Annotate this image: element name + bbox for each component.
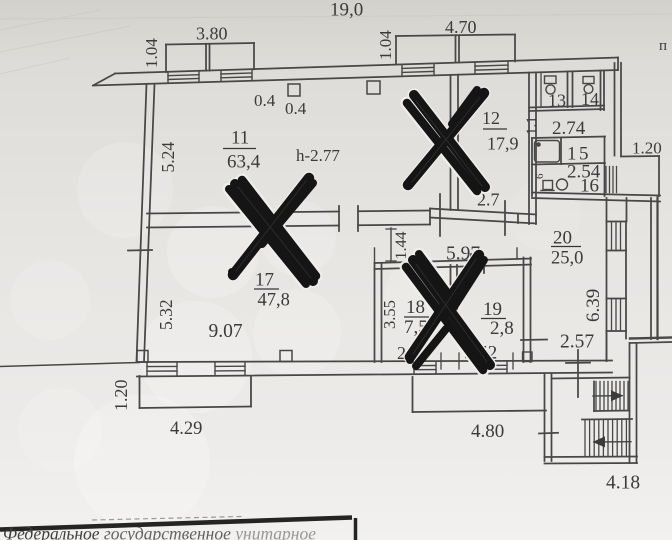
svg-text:17: 17 xyxy=(255,270,274,291)
svg-text:3.80: 3.80 xyxy=(196,24,228,44)
svg-text:19: 19 xyxy=(483,299,502,320)
svg-text:2.57: 2.57 xyxy=(560,332,594,353)
svg-text:1.1: 1.1 xyxy=(524,116,540,135)
svg-text:5.32: 5.32 xyxy=(156,299,176,330)
svg-text:2,8: 2,8 xyxy=(490,318,514,339)
svg-text:1.20: 1.20 xyxy=(111,380,131,412)
svg-text:п: п xyxy=(659,38,667,54)
svg-text:1.04: 1.04 xyxy=(142,38,161,68)
svg-text:13: 13 xyxy=(548,91,566,111)
svg-text:3.55: 3.55 xyxy=(380,300,399,329)
svg-text:2.74: 2.74 xyxy=(552,118,586,139)
svg-text:18: 18 xyxy=(406,297,425,318)
svg-text:1.04: 1.04 xyxy=(376,30,395,60)
svg-text:Федеральное государственное ун: Федеральное государственное унитарное xyxy=(3,524,316,540)
svg-text:17,9: 17,9 xyxy=(487,134,519,154)
svg-text:h-2.77: h-2.77 xyxy=(296,146,340,165)
svg-text:5.24: 5.24 xyxy=(158,142,178,173)
svg-text:4.18: 4.18 xyxy=(606,473,640,494)
svg-text:9.07: 9.07 xyxy=(209,321,243,342)
svg-text:4.70: 4.70 xyxy=(445,17,477,37)
svg-text:12: 12 xyxy=(482,108,500,128)
svg-text:0.4: 0.4 xyxy=(254,91,276,110)
svg-text:4.80: 4.80 xyxy=(471,421,504,442)
svg-text:1.20: 1.20 xyxy=(632,139,662,158)
svg-text:14: 14 xyxy=(581,89,599,109)
svg-text:6.39: 6.39 xyxy=(583,289,604,322)
svg-text:20: 20 xyxy=(553,228,572,249)
svg-text:16: 16 xyxy=(580,176,599,197)
svg-text:1.44: 1.44 xyxy=(393,232,410,260)
svg-text:0.4: 0.4 xyxy=(285,99,307,118)
svg-text:11: 11 xyxy=(231,128,249,149)
svg-text:4.29: 4.29 xyxy=(170,419,202,439)
svg-text:47,8: 47,8 xyxy=(258,291,290,311)
svg-text:19,0: 19,0 xyxy=(330,0,363,21)
svg-text:25,0: 25,0 xyxy=(551,249,583,269)
svg-text:6: 6 xyxy=(534,173,546,179)
svg-text:63,4: 63,4 xyxy=(227,152,261,173)
